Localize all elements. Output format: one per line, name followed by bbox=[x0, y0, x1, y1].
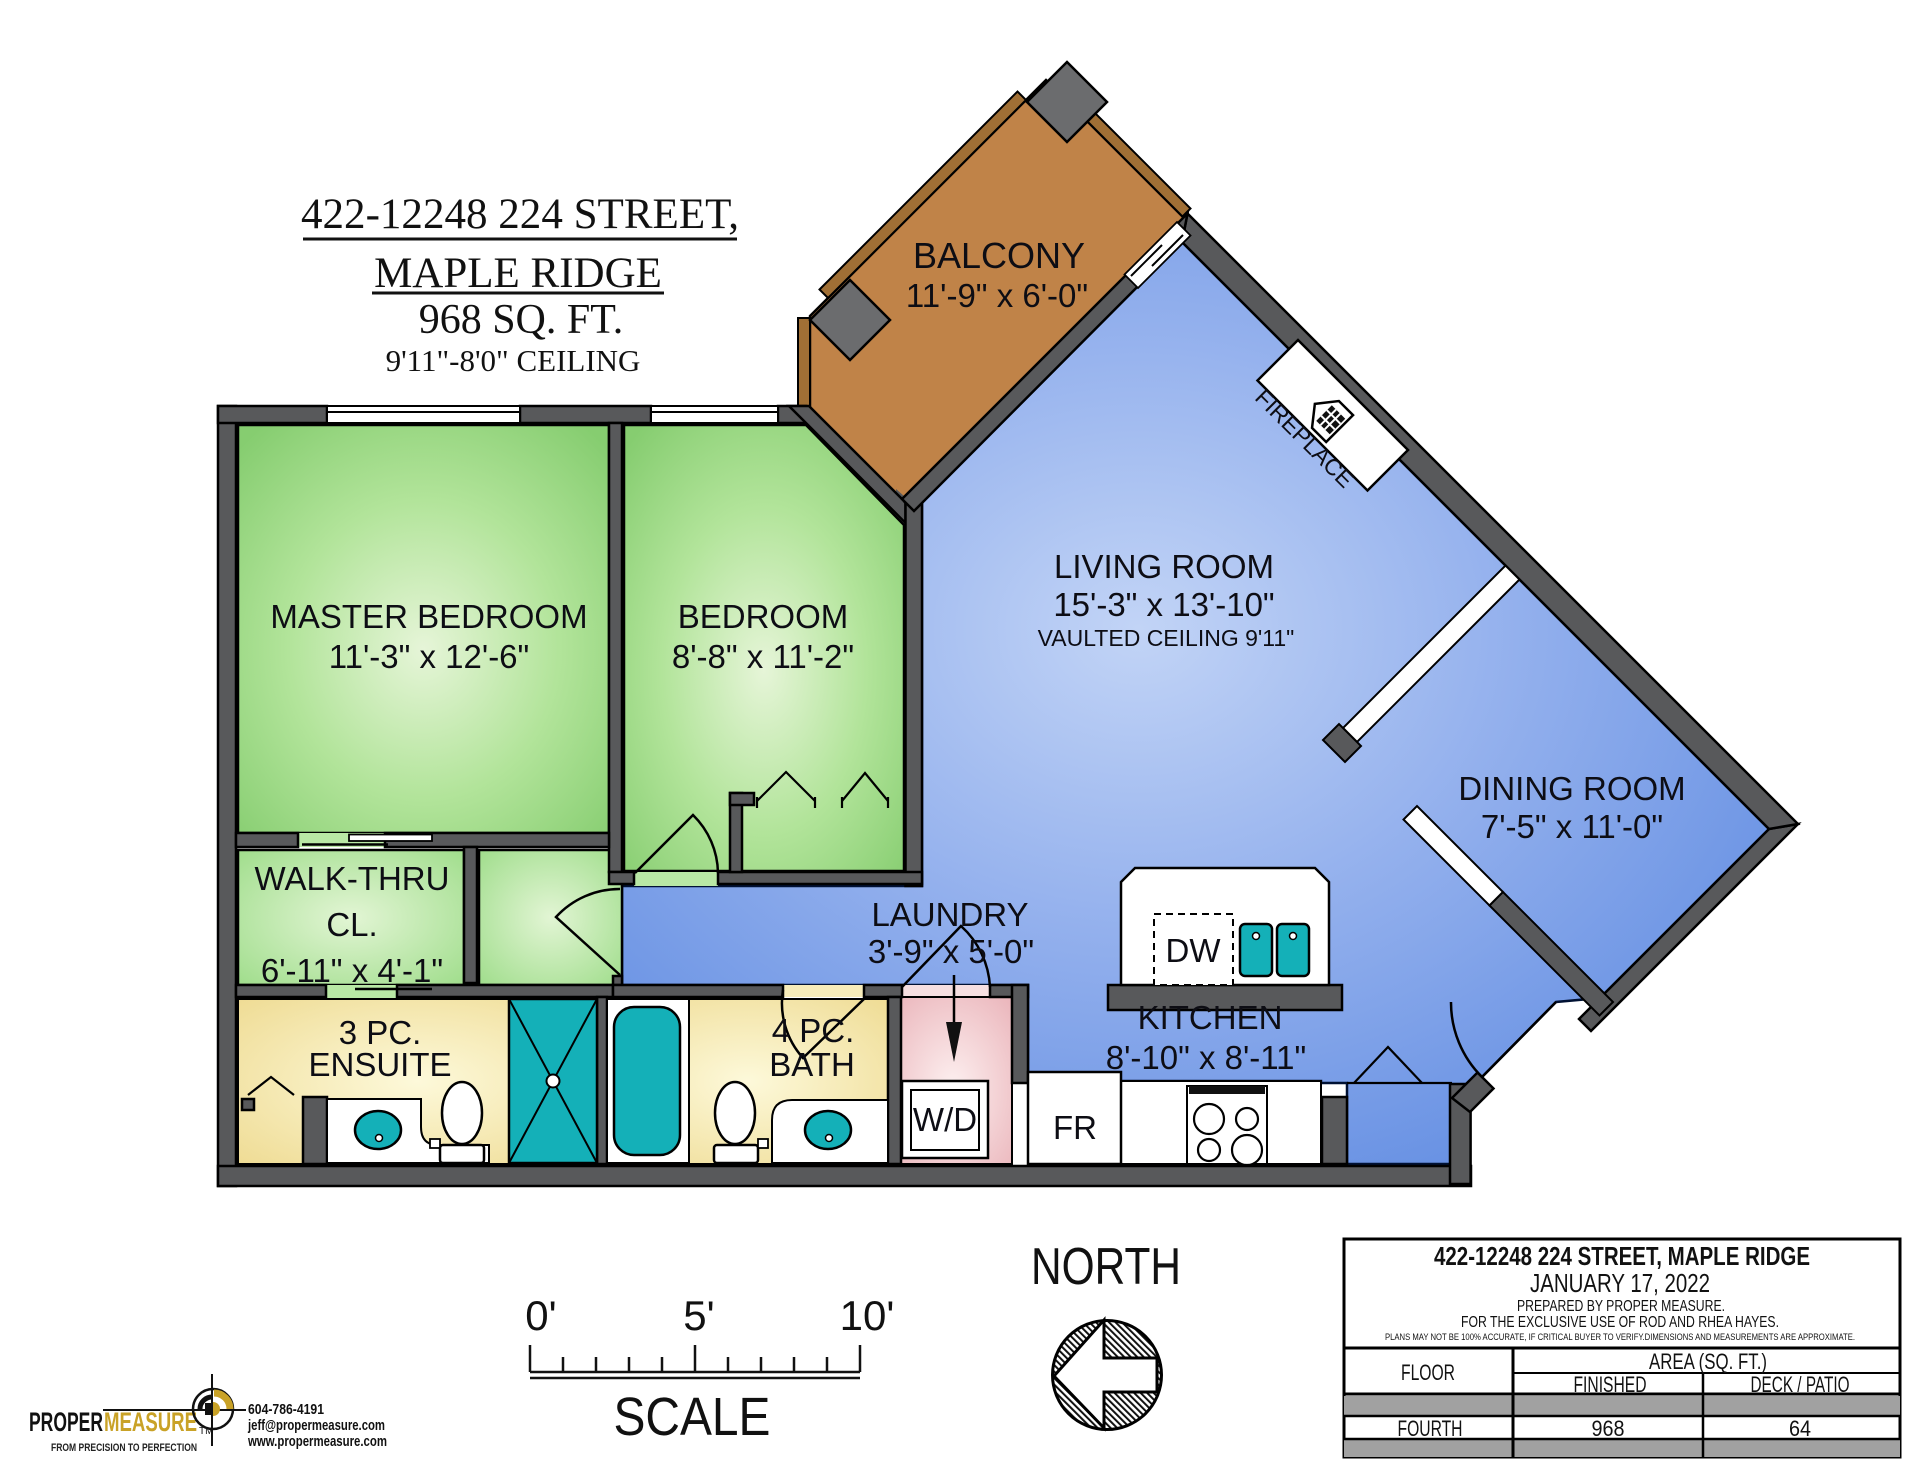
svg-text:ENSUITE: ENSUITE bbox=[308, 1046, 451, 1083]
svg-text:4 PC.: 4 PC. bbox=[772, 1012, 855, 1049]
svg-text:www.propermeasure.com: www.propermeasure.com bbox=[247, 1433, 387, 1450]
svg-text:LAUNDRY: LAUNDRY bbox=[871, 896, 1028, 933]
svg-text:968: 968 bbox=[1592, 1416, 1625, 1441]
svg-text:MASTER BEDROOM: MASTER BEDROOM bbox=[270, 598, 587, 635]
svg-text:11'-3" x 12'-6": 11'-3" x 12'-6" bbox=[329, 638, 530, 675]
svg-text:11'-9" x 6'-0": 11'-9" x 6'-0" bbox=[906, 277, 1088, 314]
svg-text:422-12248 224 STREET, MAPLE RI: 422-12248 224 STREET, MAPLE RIDGE bbox=[1434, 1241, 1810, 1271]
svg-text:DW: DW bbox=[1166, 932, 1222, 969]
svg-text:PREPARED BY PROPER MEASURE.: PREPARED BY PROPER MEASURE. bbox=[1517, 1298, 1725, 1315]
svg-text:FR: FR bbox=[1053, 1109, 1097, 1146]
svg-text:VAULTED CEILING 9'11": VAULTED CEILING 9'11" bbox=[1038, 625, 1295, 651]
svg-text:CL.: CL. bbox=[326, 906, 377, 943]
svg-text:BATH: BATH bbox=[769, 1046, 855, 1083]
svg-text:0': 0' bbox=[525, 1292, 556, 1339]
svg-text:JANUARY 17, 2022: JANUARY 17, 2022 bbox=[1530, 1268, 1710, 1298]
svg-text:PROPER: PROPER bbox=[29, 1407, 103, 1437]
svg-text:FOR THE EXCLUSIVE USE OF ROD A: FOR THE EXCLUSIVE USE OF ROD AND RHEA HA… bbox=[1461, 1314, 1779, 1331]
svg-text:AREA (SQ. FT.): AREA (SQ. FT.) bbox=[1649, 1349, 1767, 1374]
svg-text:8'-8" x 11'-2": 8'-8" x 11'-2" bbox=[672, 638, 854, 675]
svg-text:MEASURE: MEASURE bbox=[104, 1407, 197, 1437]
svg-text:NORTH: NORTH bbox=[1031, 1238, 1181, 1296]
svg-text:DECK / PATIO: DECK / PATIO bbox=[1751, 1372, 1850, 1397]
svg-text:604-786-4191: 604-786-4191 bbox=[248, 1401, 324, 1418]
svg-text:MAPLE RIDGE: MAPLE RIDGE bbox=[374, 250, 662, 297]
svg-text:9'11"-8'0" CEILING: 9'11"-8'0" CEILING bbox=[386, 343, 641, 378]
svg-text:SCALE: SCALE bbox=[614, 1387, 771, 1447]
svg-text:15'-3" x 13'-10": 15'-3" x 13'-10" bbox=[1053, 586, 1274, 623]
svg-text:KITCHEN: KITCHEN bbox=[1138, 999, 1283, 1036]
svg-text:6'-11" x 4'-1": 6'-11" x 4'-1" bbox=[261, 952, 443, 989]
svg-text:64: 64 bbox=[1789, 1416, 1811, 1441]
svg-text:FROM PRECISION TO PERFECTION: FROM PRECISION TO PERFECTION bbox=[51, 1442, 197, 1454]
svg-text:8'-10" x 8'-11": 8'-10" x 8'-11" bbox=[1106, 1039, 1307, 1076]
svg-text:FLOOR: FLOOR bbox=[1401, 1360, 1455, 1385]
svg-text:LIVING ROOM: LIVING ROOM bbox=[1054, 548, 1274, 585]
svg-text:FOURTH: FOURTH bbox=[1398, 1416, 1463, 1441]
svg-text:PLANS MAY NOT BE 100% ACCURATE: PLANS MAY NOT BE 100% ACCURATE, IF CRITI… bbox=[1385, 1332, 1855, 1343]
svg-text:10': 10' bbox=[840, 1292, 895, 1339]
svg-text:WALK-THRU: WALK-THRU bbox=[255, 860, 450, 897]
svg-text:FINISHED: FINISHED bbox=[1574, 1372, 1647, 1397]
svg-text:968 SQ. FT.: 968 SQ. FT. bbox=[419, 297, 624, 343]
svg-text:5': 5' bbox=[683, 1292, 714, 1339]
svg-text:7'-5" x 11'-0": 7'-5" x 11'-0" bbox=[1481, 808, 1663, 845]
svg-text:BALCONY: BALCONY bbox=[913, 235, 1085, 276]
svg-text:422-12248 224 STREET,: 422-12248 224 STREET, bbox=[301, 191, 739, 238]
svg-text:BEDROOM: BEDROOM bbox=[678, 598, 849, 635]
svg-text:DINING ROOM: DINING ROOM bbox=[1458, 770, 1685, 807]
svg-text:3'-9" x 5'-0": 3'-9" x 5'-0" bbox=[868, 933, 1034, 970]
svg-text:jeff@propermeasure.com: jeff@propermeasure.com bbox=[247, 1417, 385, 1434]
svg-text:W/D: W/D bbox=[913, 1101, 977, 1138]
